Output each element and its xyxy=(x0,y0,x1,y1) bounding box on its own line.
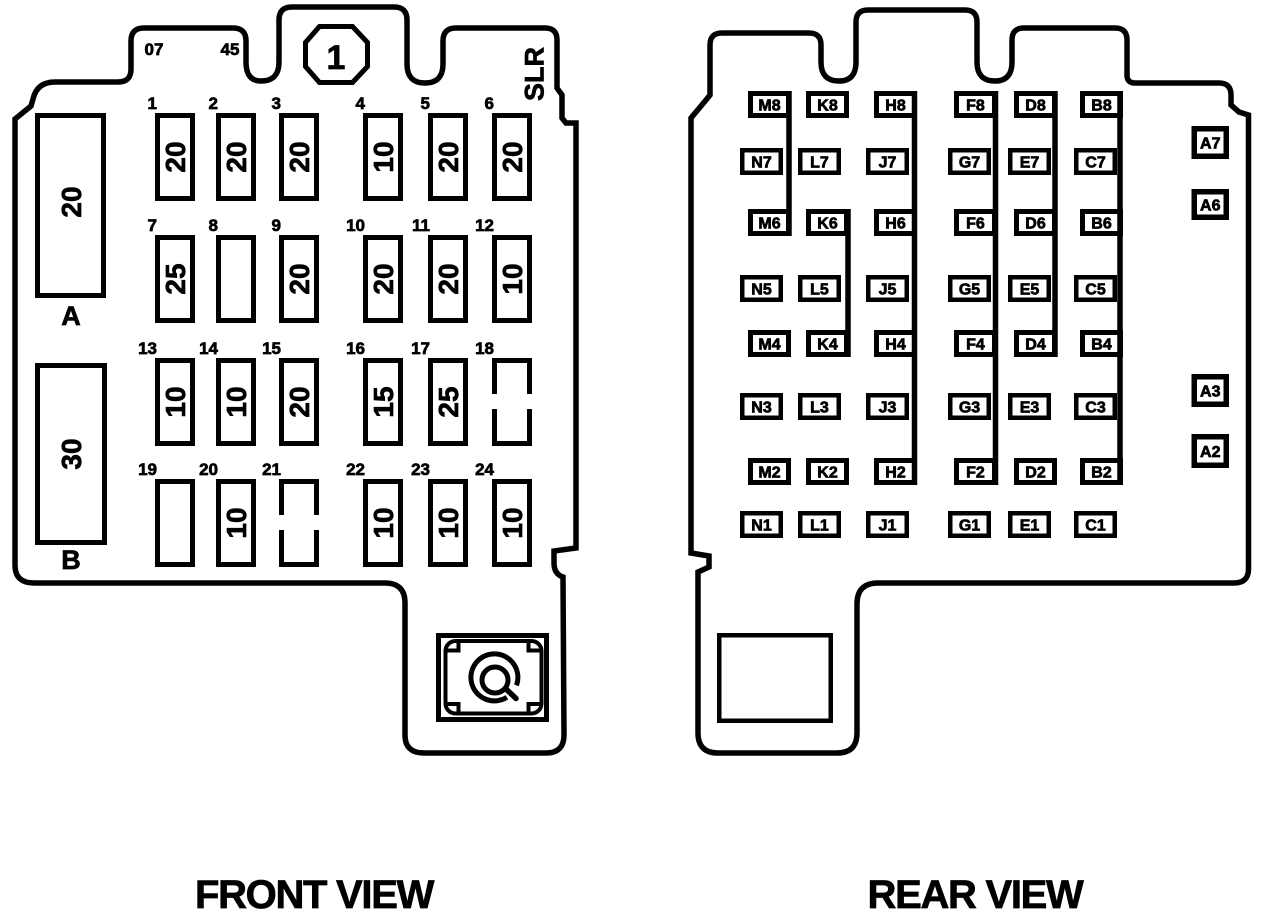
svg-text:M8: M8 xyxy=(758,98,780,115)
svg-text:5: 5 xyxy=(421,94,430,113)
svg-text:K2: K2 xyxy=(817,465,838,482)
svg-text:11: 11 xyxy=(412,216,430,235)
svg-text:45: 45 xyxy=(221,40,240,59)
svg-text:J5: J5 xyxy=(879,282,897,299)
svg-text:10: 10 xyxy=(497,263,528,294)
svg-text:10: 10 xyxy=(221,386,252,417)
svg-text:G7: G7 xyxy=(959,155,980,172)
svg-text:18: 18 xyxy=(475,339,494,358)
svg-text:FRONT VIEW: FRONT VIEW xyxy=(195,873,435,914)
svg-text:H2: H2 xyxy=(885,465,906,482)
svg-text:10: 10 xyxy=(497,507,528,538)
svg-text:20: 20 xyxy=(497,141,528,172)
svg-text:15: 15 xyxy=(262,339,281,358)
svg-text:23: 23 xyxy=(411,460,430,479)
svg-text:30: 30 xyxy=(56,438,87,469)
svg-text:N5: N5 xyxy=(751,282,772,299)
svg-text:21: 21 xyxy=(262,460,281,479)
svg-text:17: 17 xyxy=(411,339,430,358)
svg-text:C5: C5 xyxy=(1085,282,1106,299)
svg-text:12: 12 xyxy=(475,216,494,235)
svg-text:4: 4 xyxy=(356,94,366,113)
svg-text:N7: N7 xyxy=(751,155,772,172)
svg-text:B: B xyxy=(61,545,81,575)
svg-text:M4: M4 xyxy=(758,337,780,354)
svg-text:B2: B2 xyxy=(1091,465,1112,482)
svg-text:10: 10 xyxy=(221,507,252,538)
svg-text:L5: L5 xyxy=(810,282,829,299)
svg-text:E1: E1 xyxy=(1020,518,1040,535)
svg-text:A2: A2 xyxy=(1200,444,1221,461)
svg-text:F2: F2 xyxy=(966,465,985,482)
svg-text:14: 14 xyxy=(199,339,218,358)
svg-text:E5: E5 xyxy=(1020,282,1040,299)
svg-text:9: 9 xyxy=(272,216,281,235)
svg-text:20: 20 xyxy=(56,186,87,217)
svg-text:19: 19 xyxy=(138,460,157,479)
svg-text:24: 24 xyxy=(475,460,494,479)
svg-text:M6: M6 xyxy=(758,216,780,233)
svg-text:10: 10 xyxy=(346,216,365,235)
svg-text:J3: J3 xyxy=(879,400,897,417)
svg-text:N3: N3 xyxy=(751,400,772,417)
svg-text:K6: K6 xyxy=(817,216,838,233)
svg-text:07: 07 xyxy=(145,40,164,59)
svg-text:15: 15 xyxy=(368,386,399,417)
svg-text:L3: L3 xyxy=(810,400,829,417)
svg-text:3: 3 xyxy=(272,94,281,113)
svg-text:G5: G5 xyxy=(959,282,980,299)
svg-text:7: 7 xyxy=(148,216,157,235)
svg-text:H6: H6 xyxy=(885,216,906,233)
svg-text:F4: F4 xyxy=(966,337,985,354)
svg-text:20: 20 xyxy=(433,263,464,294)
svg-text:16: 16 xyxy=(346,339,365,358)
svg-text:K4: K4 xyxy=(817,337,838,354)
svg-text:E7: E7 xyxy=(1020,155,1040,172)
svg-text:25: 25 xyxy=(160,263,191,294)
svg-text:K8: K8 xyxy=(817,98,838,115)
svg-text:A: A xyxy=(61,301,81,331)
svg-text:B4: B4 xyxy=(1091,337,1112,354)
svg-text:6: 6 xyxy=(485,94,494,113)
svg-text:D6: D6 xyxy=(1025,216,1046,233)
svg-text:10: 10 xyxy=(433,507,464,538)
svg-text:D8: D8 xyxy=(1025,98,1046,115)
svg-text:20: 20 xyxy=(199,460,218,479)
svg-text:E3: E3 xyxy=(1020,400,1040,417)
svg-text:20: 20 xyxy=(284,141,315,172)
svg-text:SLR: SLR xyxy=(520,47,550,101)
svg-text:10: 10 xyxy=(368,507,399,538)
svg-text:10: 10 xyxy=(368,141,399,172)
svg-text:2: 2 xyxy=(209,94,218,113)
svg-text:22: 22 xyxy=(346,460,365,479)
svg-text:20: 20 xyxy=(221,141,252,172)
svg-text:25: 25 xyxy=(433,386,464,417)
svg-text:13: 13 xyxy=(138,339,157,358)
svg-text:1: 1 xyxy=(327,39,346,77)
svg-text:J1: J1 xyxy=(879,518,897,535)
svg-text:B6: B6 xyxy=(1091,216,1112,233)
svg-text:1: 1 xyxy=(148,94,157,113)
svg-text:A6: A6 xyxy=(1200,198,1221,215)
svg-text:20: 20 xyxy=(284,386,315,417)
svg-text:L1: L1 xyxy=(810,518,829,535)
svg-text:20: 20 xyxy=(160,141,191,172)
svg-text:H4: H4 xyxy=(885,337,906,354)
svg-text:N1: N1 xyxy=(751,518,772,535)
svg-text:M2: M2 xyxy=(758,465,780,482)
svg-text:G1: G1 xyxy=(959,518,980,535)
svg-text:A3: A3 xyxy=(1200,384,1221,401)
svg-text:8: 8 xyxy=(209,216,218,235)
svg-text:C3: C3 xyxy=(1085,400,1106,417)
svg-text:L7: L7 xyxy=(810,155,829,172)
svg-text:H8: H8 xyxy=(885,98,906,115)
svg-text:REAR VIEW: REAR VIEW xyxy=(868,873,1085,914)
svg-text:F6: F6 xyxy=(966,216,985,233)
svg-text:J7: J7 xyxy=(879,155,897,172)
svg-text:20: 20 xyxy=(284,263,315,294)
svg-text:C1: C1 xyxy=(1085,518,1106,535)
svg-text:C7: C7 xyxy=(1085,155,1106,172)
svg-text:F8: F8 xyxy=(966,98,985,115)
svg-text:D4: D4 xyxy=(1025,337,1046,354)
svg-text:G3: G3 xyxy=(959,400,980,417)
svg-text:20: 20 xyxy=(433,141,464,172)
svg-text:A7: A7 xyxy=(1200,136,1221,153)
svg-text:D2: D2 xyxy=(1025,465,1046,482)
svg-text:20: 20 xyxy=(368,263,399,294)
svg-text:10: 10 xyxy=(160,386,191,417)
svg-text:B8: B8 xyxy=(1091,98,1112,115)
